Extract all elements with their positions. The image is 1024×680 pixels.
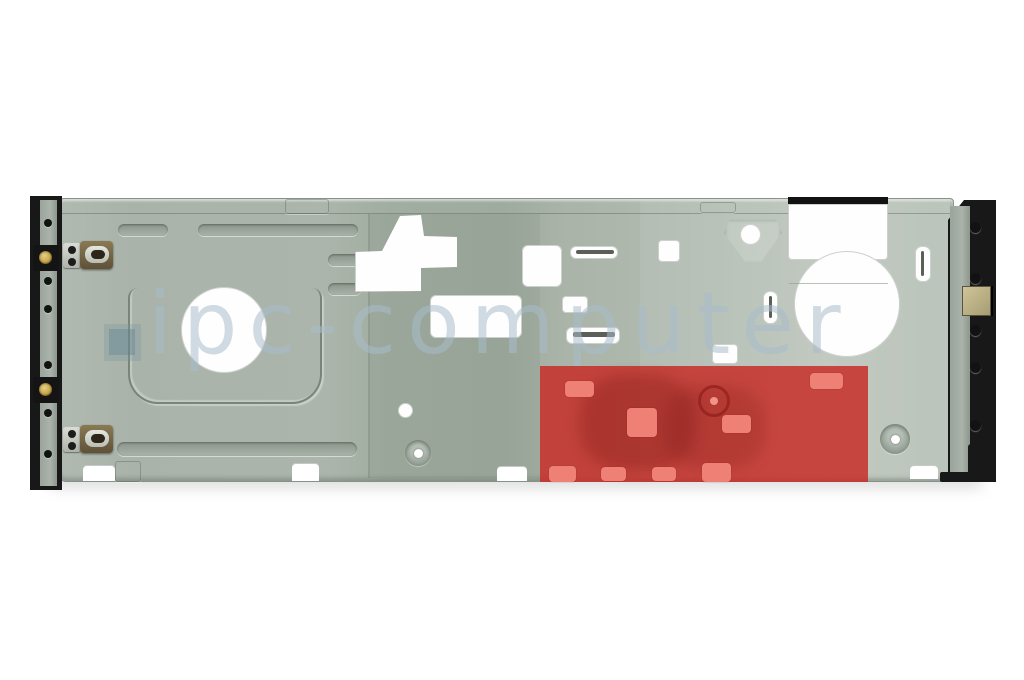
clip-slot [91, 250, 105, 259]
screw-hole [44, 219, 52, 227]
bottom-tab-notch [497, 466, 527, 481]
screw-hole [970, 273, 981, 284]
screw-hole [970, 325, 981, 336]
watermark-text: ipc-computer [148, 281, 852, 367]
right-metal-rail [950, 206, 970, 474]
highlighted-cutout [601, 467, 626, 481]
cutout-small-circle [398, 403, 413, 418]
highlighted-cutout [810, 373, 843, 389]
screw-boss [880, 424, 910, 454]
bezel-foot [940, 472, 970, 482]
screw-hole [44, 361, 52, 369]
triangle-mount-hole [740, 224, 761, 245]
screw-hole [970, 222, 981, 233]
highlighted-cutout [722, 415, 751, 433]
clip-hole [68, 246, 76, 254]
stamped-tab-outline [700, 202, 736, 213]
stamped-groove [117, 442, 357, 456]
cutout-small-square [658, 240, 680, 262]
clip-hole [68, 430, 76, 438]
bezel-foot [968, 444, 994, 482]
slot-pin [921, 251, 924, 276]
gold-connector [962, 286, 991, 316]
latch-clip [63, 425, 113, 453]
slot-pin [576, 250, 614, 254]
stamped-tab-outline [285, 199, 329, 214]
watermark-logo-square-inner [109, 329, 135, 355]
screw-boss [405, 440, 431, 466]
bottom-tab-notch [292, 463, 319, 481]
screw-boss-pin [414, 449, 423, 458]
highlighted-cutout [652, 467, 676, 481]
screw-boss-pin [891, 435, 900, 444]
bottom-tab-notch [83, 465, 115, 481]
highlighted-screw-boss [698, 385, 730, 417]
screw-hole [44, 450, 52, 458]
stamped-groove [118, 224, 168, 236]
screw-hole [44, 409, 52, 417]
screw-hole [44, 305, 52, 313]
highlighted-cutout [702, 463, 731, 482]
latch-clip [63, 241, 113, 269]
stamped-square-outline [115, 461, 141, 482]
stamped-groove [198, 224, 358, 236]
left-metal-rail [40, 200, 57, 486]
clip-hole [68, 442, 76, 450]
clip-hole [68, 258, 76, 266]
highlighted-cutout [627, 408, 657, 437]
highlighted-cutout [565, 381, 594, 397]
highlighted-screw-pin [710, 397, 718, 405]
gold-screw [39, 383, 52, 396]
gold-screw [39, 251, 52, 264]
screw-hole [44, 277, 52, 285]
clip-slot [91, 434, 105, 443]
product-photo: ipc-computer [0, 0, 1024, 680]
screw-hole [970, 362, 981, 373]
bottom-tab-notch [910, 465, 938, 479]
screw-hole [970, 420, 981, 431]
highlighted-cutout [549, 466, 576, 482]
